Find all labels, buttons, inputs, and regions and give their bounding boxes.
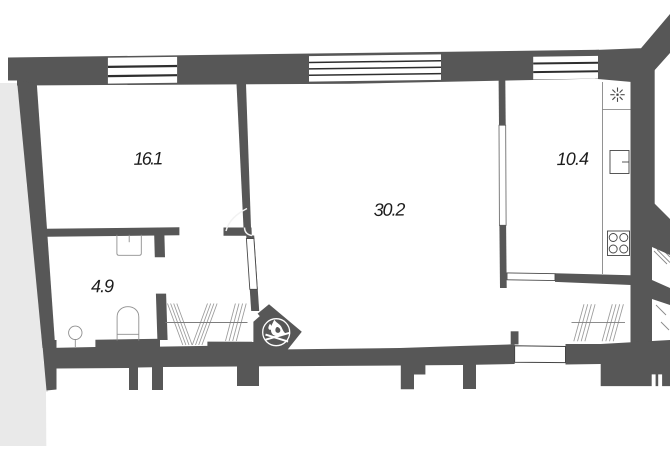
svg-text:10.4: 10.4 <box>556 149 589 170</box>
svg-text:16.1: 16.1 <box>133 148 162 168</box>
svg-text:4.9: 4.9 <box>91 276 114 296</box>
svg-text:30.2: 30.2 <box>374 199 406 220</box>
